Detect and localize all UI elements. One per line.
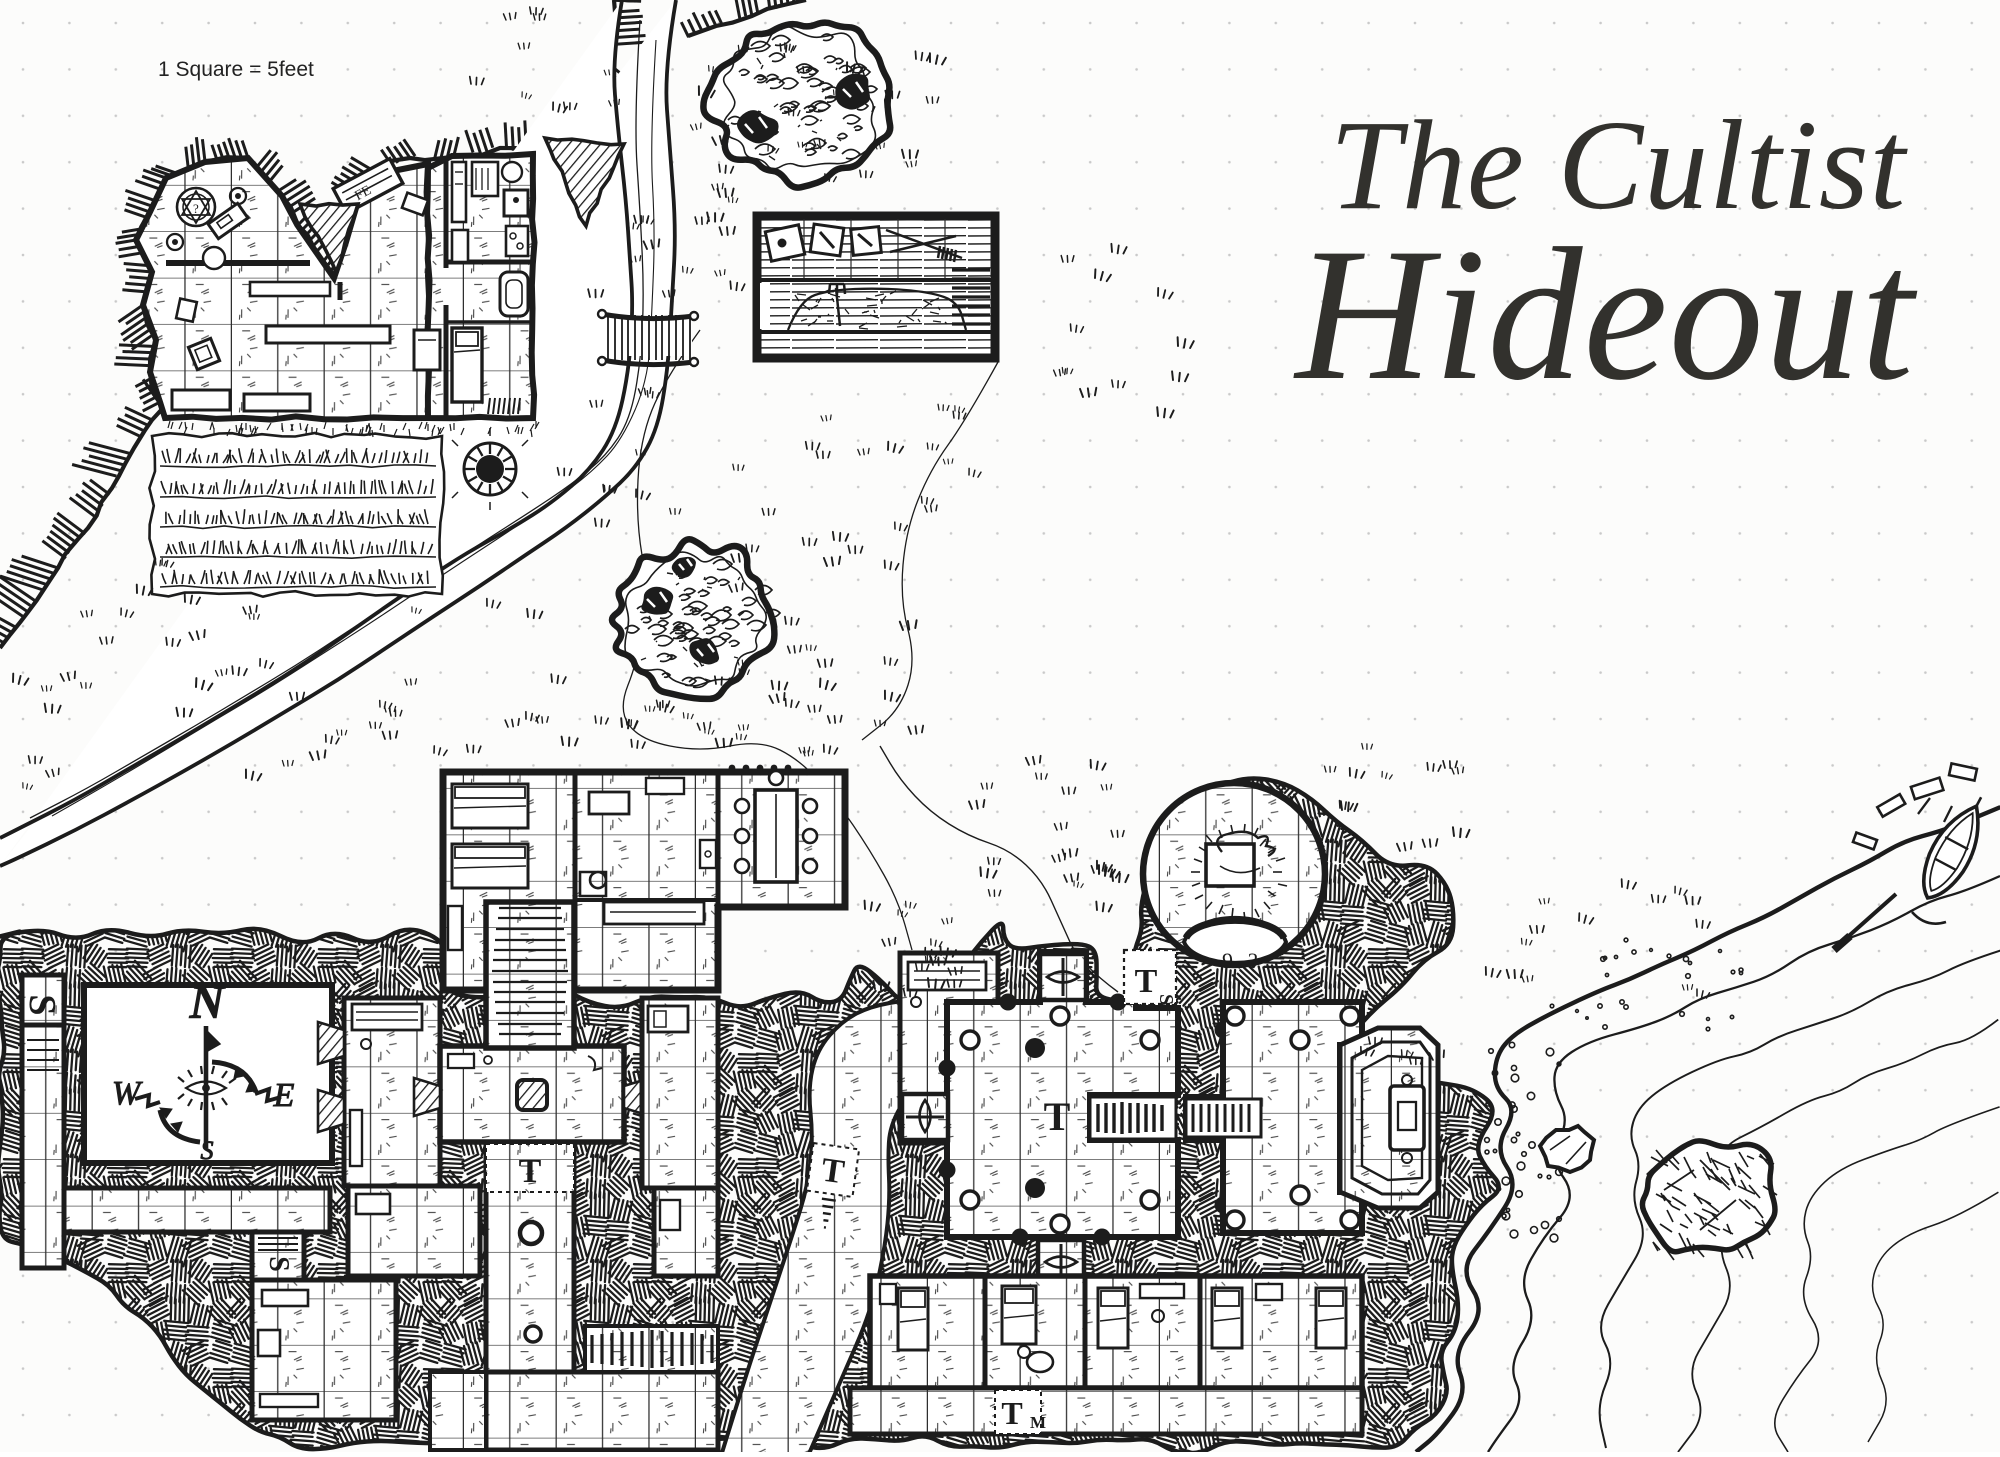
svg-text:S: S xyxy=(263,1256,294,1272)
svg-text:T: T xyxy=(1044,1094,1071,1139)
svg-text:9: 9 xyxy=(1222,948,1233,973)
svg-text:T: T xyxy=(1001,1395,1022,1431)
svg-text:S: S xyxy=(21,994,63,1015)
svg-text:Hideout: Hideout xyxy=(1292,210,1917,420)
svg-text:E: E xyxy=(273,1077,295,1114)
svg-text:S: S xyxy=(1155,994,1177,1005)
svg-text:1 Square = 5feet: 1 Square = 5feet xyxy=(158,58,314,81)
svg-text:M: M xyxy=(1030,1413,1046,1432)
svg-text:N: N xyxy=(189,976,227,1029)
svg-text:S: S xyxy=(201,1136,214,1165)
svg-text:T: T xyxy=(1135,963,1158,1000)
svg-text:?: ? xyxy=(1248,948,1258,973)
svg-text:W: W xyxy=(112,1075,143,1112)
svg-text:?: ? xyxy=(193,201,199,216)
svg-text:T: T xyxy=(519,1153,542,1190)
